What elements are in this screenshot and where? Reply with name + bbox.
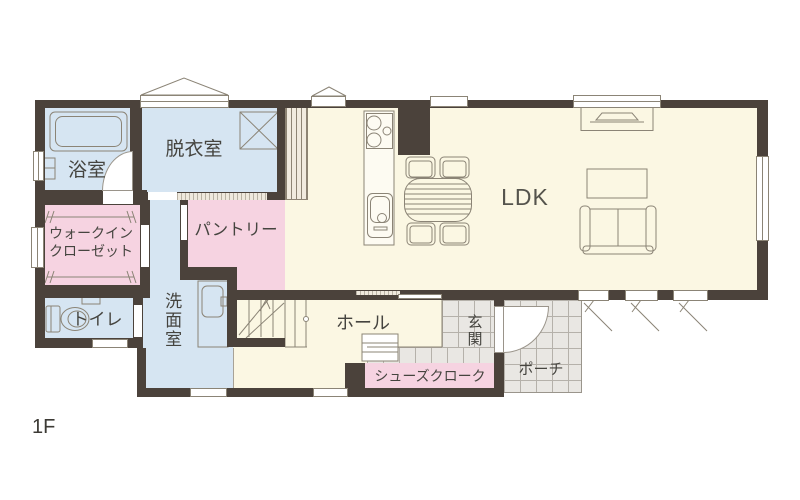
room-pantry-floor-ext <box>233 267 285 292</box>
window-bathroom-west <box>33 151 44 181</box>
room-label-porch: ポーチ <box>508 360 574 380</box>
wall-stairs-west <box>227 267 237 347</box>
wall-pantry-south <box>180 267 233 280</box>
wall-shoe-cloak-west <box>345 363 365 388</box>
room-label-dressing-room: 脱衣室 <box>144 138 244 163</box>
room-label-ldk: LDK <box>493 183 557 213</box>
window-ldk-south-2 <box>625 290 658 301</box>
window-toilet-south <box>92 339 128 348</box>
kitchen-cupboard <box>285 104 308 200</box>
wall-closet-toilet <box>35 285 147 298</box>
wall-kitchen-column <box>398 108 430 155</box>
window-dressing-north <box>140 95 229 108</box>
entrance-tile-strip <box>367 347 494 363</box>
room-label-walk-in-closet-line1: ウォークイン <box>42 224 140 242</box>
room-label-washroom: 洗面室 <box>160 292 182 349</box>
dressing-sliding-door <box>177 193 267 200</box>
hall-ldk-sliding-door <box>398 294 442 299</box>
room-label-shoe-cloak: シューズクローク <box>366 367 494 385</box>
window-ldk-north-1 <box>430 96 468 107</box>
pantry-door <box>181 205 187 240</box>
floor-label: 1F <box>32 414 72 440</box>
hall-ldk-slider-track <box>356 291 400 295</box>
window-ldk-south-3 <box>673 290 708 301</box>
room-label-toilet: トイレ <box>57 309 137 331</box>
window-washroom-south <box>190 388 227 397</box>
window-swing-triangle <box>312 87 346 96</box>
bathroom-door-gap <box>103 191 133 204</box>
window-ldk-south-1 <box>578 290 609 301</box>
washroom-hall-boundary <box>233 348 234 388</box>
window-hall-south <box>313 388 348 397</box>
room-label-pantry: パントリー <box>188 220 284 241</box>
window-ldk-east <box>756 156 769 241</box>
window-ldk-north-2 <box>573 95 661 108</box>
closet-door <box>141 225 149 267</box>
window-kitchen-north <box>311 96 346 107</box>
room-label-walk-in-closet-line2: クローゼット <box>42 242 140 260</box>
wall-stairs-south <box>233 338 285 347</box>
room-label-hall: ホール <box>323 312 403 335</box>
floor-plan-1f: 浴室 脱衣室 ウォークイン クローゼット パントリー トイレ 洗面室 ホール 玄… <box>0 0 800 500</box>
room-label-bathroom: 浴室 <box>47 159 127 184</box>
wall-dressing-kitchen <box>277 100 285 200</box>
room-label-entrance: 玄関 <box>464 314 484 348</box>
window-swing-triangle <box>141 78 228 95</box>
dressing-opening <box>148 192 177 200</box>
window-opening-flags <box>584 300 707 331</box>
